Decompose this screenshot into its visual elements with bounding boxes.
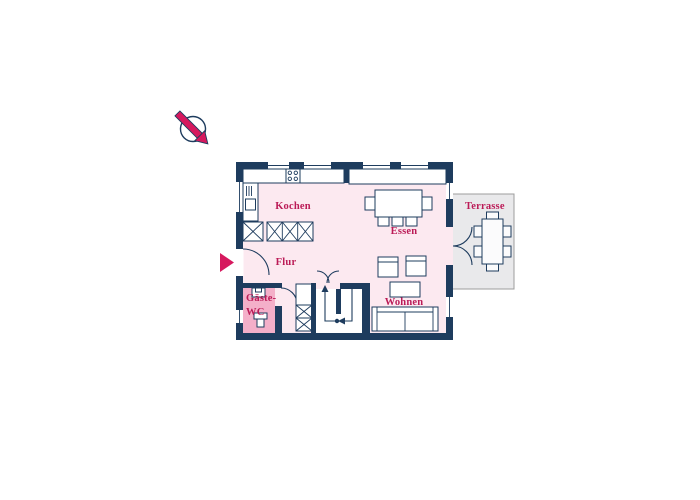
- terrace-chair: [487, 212, 499, 219]
- window: [363, 162, 390, 169]
- room-label-kochen: Kochen: [275, 201, 311, 212]
- kitchen-cabinet: [243, 222, 263, 241]
- terrace-chair: [487, 264, 499, 271]
- room-label-gaeste-wc-line1: Gäste-: [246, 293, 277, 304]
- window: [446, 297, 453, 317]
- room-label-terrasse: Terrasse: [465, 201, 505, 212]
- north-arrow-icon: [172, 108, 212, 148]
- counter-divider: [344, 169, 349, 183]
- room-label-gaeste-wc-line2: WC: [246, 307, 264, 318]
- armchair: [378, 257, 398, 277]
- dining-sideboard: [349, 169, 446, 184]
- window: [446, 183, 453, 199]
- dining-chair: [392, 217, 403, 226]
- entrance-opening: [236, 249, 244, 276]
- window: [401, 162, 428, 169]
- stair-divider: [336, 289, 341, 314]
- room-label-flur: Flur: [276, 257, 297, 268]
- sofa: [372, 307, 438, 331]
- terrace-door-opening: [446, 227, 453, 265]
- kitchen-sink-icon: [243, 183, 258, 221]
- dining-table: [375, 190, 422, 217]
- terrace: Terrasse: [452, 194, 514, 289]
- coffee-table: [390, 282, 420, 297]
- dining-chair: [378, 217, 389, 226]
- window: [268, 162, 289, 169]
- window: [236, 310, 243, 323]
- window: [304, 162, 331, 169]
- entrance-arrow-icon: [220, 253, 234, 272]
- window: [236, 182, 243, 212]
- terrace-chair: [503, 246, 511, 257]
- hall-wardrobe: [296, 284, 312, 331]
- armchair: [406, 256, 426, 276]
- dining-chair: [406, 217, 417, 226]
- kitchen-cabinet-row: [267, 222, 313, 241]
- floorplan-canvas: Terrasse: [0, 0, 700, 500]
- stove-icon: [286, 169, 300, 183]
- dining-chair: [365, 197, 375, 210]
- dining-chair: [422, 197, 432, 210]
- terrace-table: [482, 219, 503, 264]
- room-label-wohnen: Wohnen: [385, 297, 424, 308]
- floor-plan: Terrasse: [0, 0, 700, 500]
- terrace-chair: [474, 246, 482, 257]
- terrace-chair: [503, 226, 511, 237]
- room-label-essen: Essen: [391, 226, 418, 237]
- terrace-chair: [474, 226, 482, 237]
